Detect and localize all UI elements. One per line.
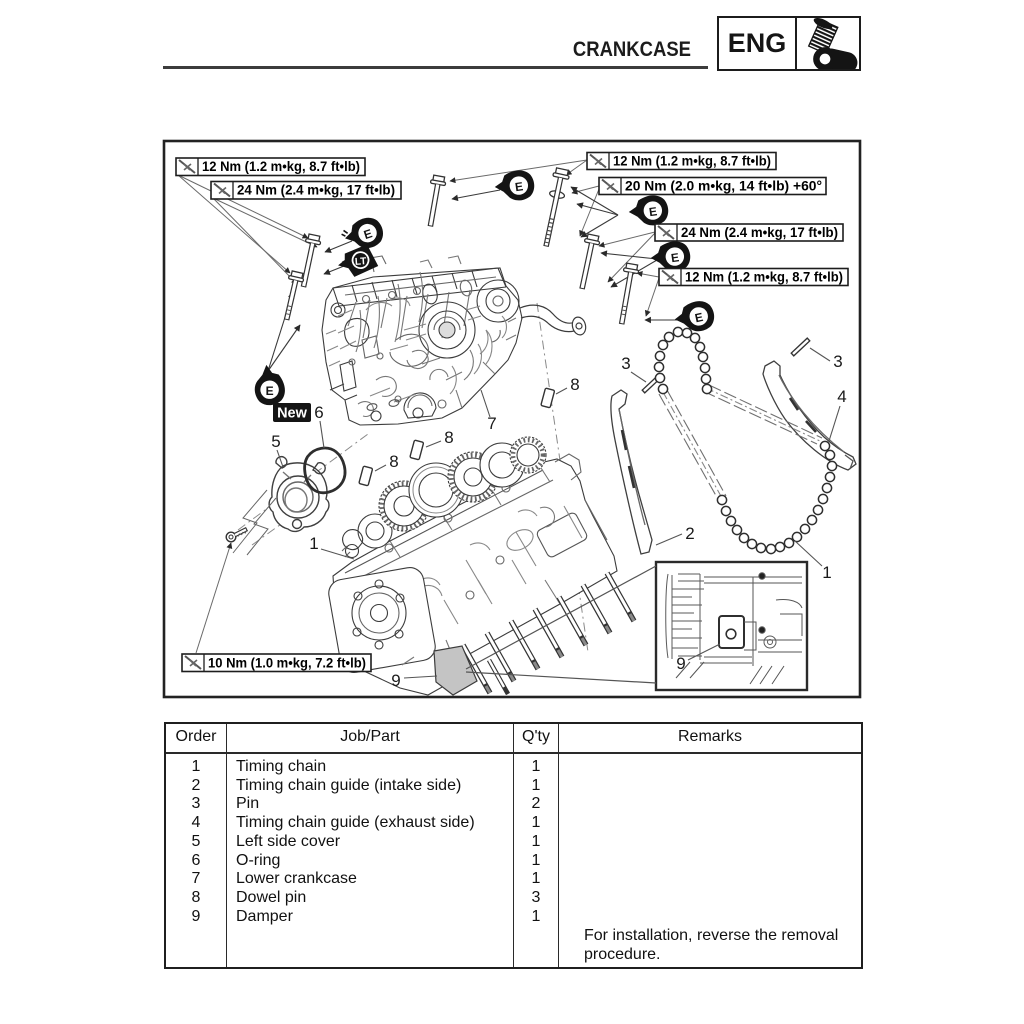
svg-text:8: 8 <box>570 375 579 394</box>
svg-text:3: 3 <box>833 352 842 371</box>
svg-text:12 Nm (1.2 m•kg, 8.7 ft•lb): 12 Nm (1.2 m•kg, 8.7 ft•lb) <box>685 270 843 285</box>
svg-text:8: 8 <box>389 452 398 471</box>
svg-text:24 Nm (2.4 m•kg, 17 ft•lb): 24 Nm (2.4 m•kg, 17 ft•lb) <box>237 183 395 198</box>
svg-text:5: 5 <box>271 432 280 451</box>
svg-text:8: 8 <box>444 428 453 447</box>
svg-text:3: 3 <box>621 354 630 373</box>
svg-text:4: 4 <box>837 387 846 406</box>
svg-text:9: 9 <box>391 671 400 690</box>
svg-text:12 Nm (1.2 m•kg, 8.7 ft•lb): 12 Nm (1.2 m•kg, 8.7 ft•lb) <box>202 159 360 174</box>
svg-text:7: 7 <box>487 414 496 433</box>
svg-text:E: E <box>266 384 274 398</box>
svg-text:1: 1 <box>309 534 318 553</box>
svg-text:2: 2 <box>685 524 694 543</box>
svg-text:1: 1 <box>822 563 831 582</box>
svg-text:6: 6 <box>314 403 323 422</box>
svg-text:24 Nm (2.4 m•kg, 17 ft•lb): 24 Nm (2.4 m•kg, 17 ft•lb) <box>681 225 838 240</box>
svg-text:20 Nm (2.0 m•kg, 14 ft•lb) +60: 20 Nm (2.0 m•kg, 14 ft•lb) +60° <box>625 179 822 194</box>
svg-text:10 Nm (1.0 m•kg, 7.2 ft•lb): 10 Nm (1.0 m•kg, 7.2 ft•lb) <box>208 656 366 671</box>
svg-text:LT: LT <box>355 256 367 268</box>
svg-text:New: New <box>277 406 308 422</box>
svg-text:12 Nm (1.2 m•kg, 8.7 ft•lb): 12 Nm (1.2 m•kg, 8.7 ft•lb) <box>613 154 771 169</box>
svg-text:9: 9 <box>676 654 685 673</box>
